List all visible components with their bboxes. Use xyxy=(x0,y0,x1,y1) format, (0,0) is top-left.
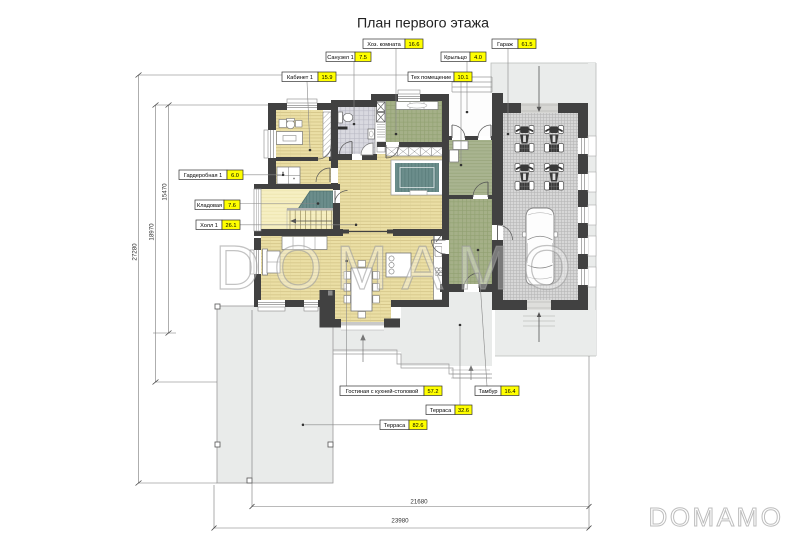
svg-text:Кладовая: Кладовая xyxy=(197,203,222,209)
svg-text:27280: 27280 xyxy=(132,243,139,261)
svg-text:DOMAMO: DOMAMO xyxy=(649,502,784,532)
svg-text:10.1: 10.1 xyxy=(458,75,469,81)
svg-text:Санузел 1: Санузел 1 xyxy=(327,55,353,61)
svg-text:21680: 21680 xyxy=(410,499,428,506)
svg-text:7.6: 7.6 xyxy=(228,203,236,209)
svg-text:Крыльцо: Крыльцо xyxy=(444,55,467,61)
svg-text:18970: 18970 xyxy=(149,223,156,241)
svg-text:Терраса: Терраса xyxy=(430,408,452,414)
svg-text:Тамбур: Тамбур xyxy=(479,389,498,395)
svg-text:Хоз. комната: Хоз. комната xyxy=(367,42,401,48)
svg-text:4.0: 4.0 xyxy=(474,55,482,61)
svg-text:32.6: 32.6 xyxy=(458,408,469,414)
svg-text:Холл 1: Холл 1 xyxy=(200,223,218,229)
svg-text:Терраса: Терраса xyxy=(384,423,406,429)
svg-text:26.1: 26.1 xyxy=(226,223,237,229)
svg-text:16.6: 16.6 xyxy=(409,42,420,48)
svg-text:15.9: 15.9 xyxy=(322,75,333,81)
svg-text:Гардеробная 1: Гардеробная 1 xyxy=(184,173,223,179)
svg-text:82.6: 82.6 xyxy=(413,423,424,429)
svg-text:План первого этажа: План первого этажа xyxy=(357,16,489,32)
svg-text:Тех помещение: Тех помещение xyxy=(411,75,452,81)
svg-text:57.2: 57.2 xyxy=(428,389,439,395)
svg-text:6.0: 6.0 xyxy=(231,173,239,179)
svg-text:7.5: 7.5 xyxy=(359,55,367,61)
svg-text:Гараж: Гараж xyxy=(497,42,513,48)
svg-text:Кабинет 1: Кабинет 1 xyxy=(287,75,313,81)
svg-text:DOMAMO: DOMAMO xyxy=(215,234,585,303)
svg-text:61.5: 61.5 xyxy=(522,42,533,48)
svg-text:15470: 15470 xyxy=(162,183,169,201)
svg-text:16.4: 16.4 xyxy=(505,389,516,395)
svg-text:Гостиная с кухней-столовой: Гостиная с кухней-столовой xyxy=(346,388,419,395)
svg-text:23980: 23980 xyxy=(391,518,409,525)
